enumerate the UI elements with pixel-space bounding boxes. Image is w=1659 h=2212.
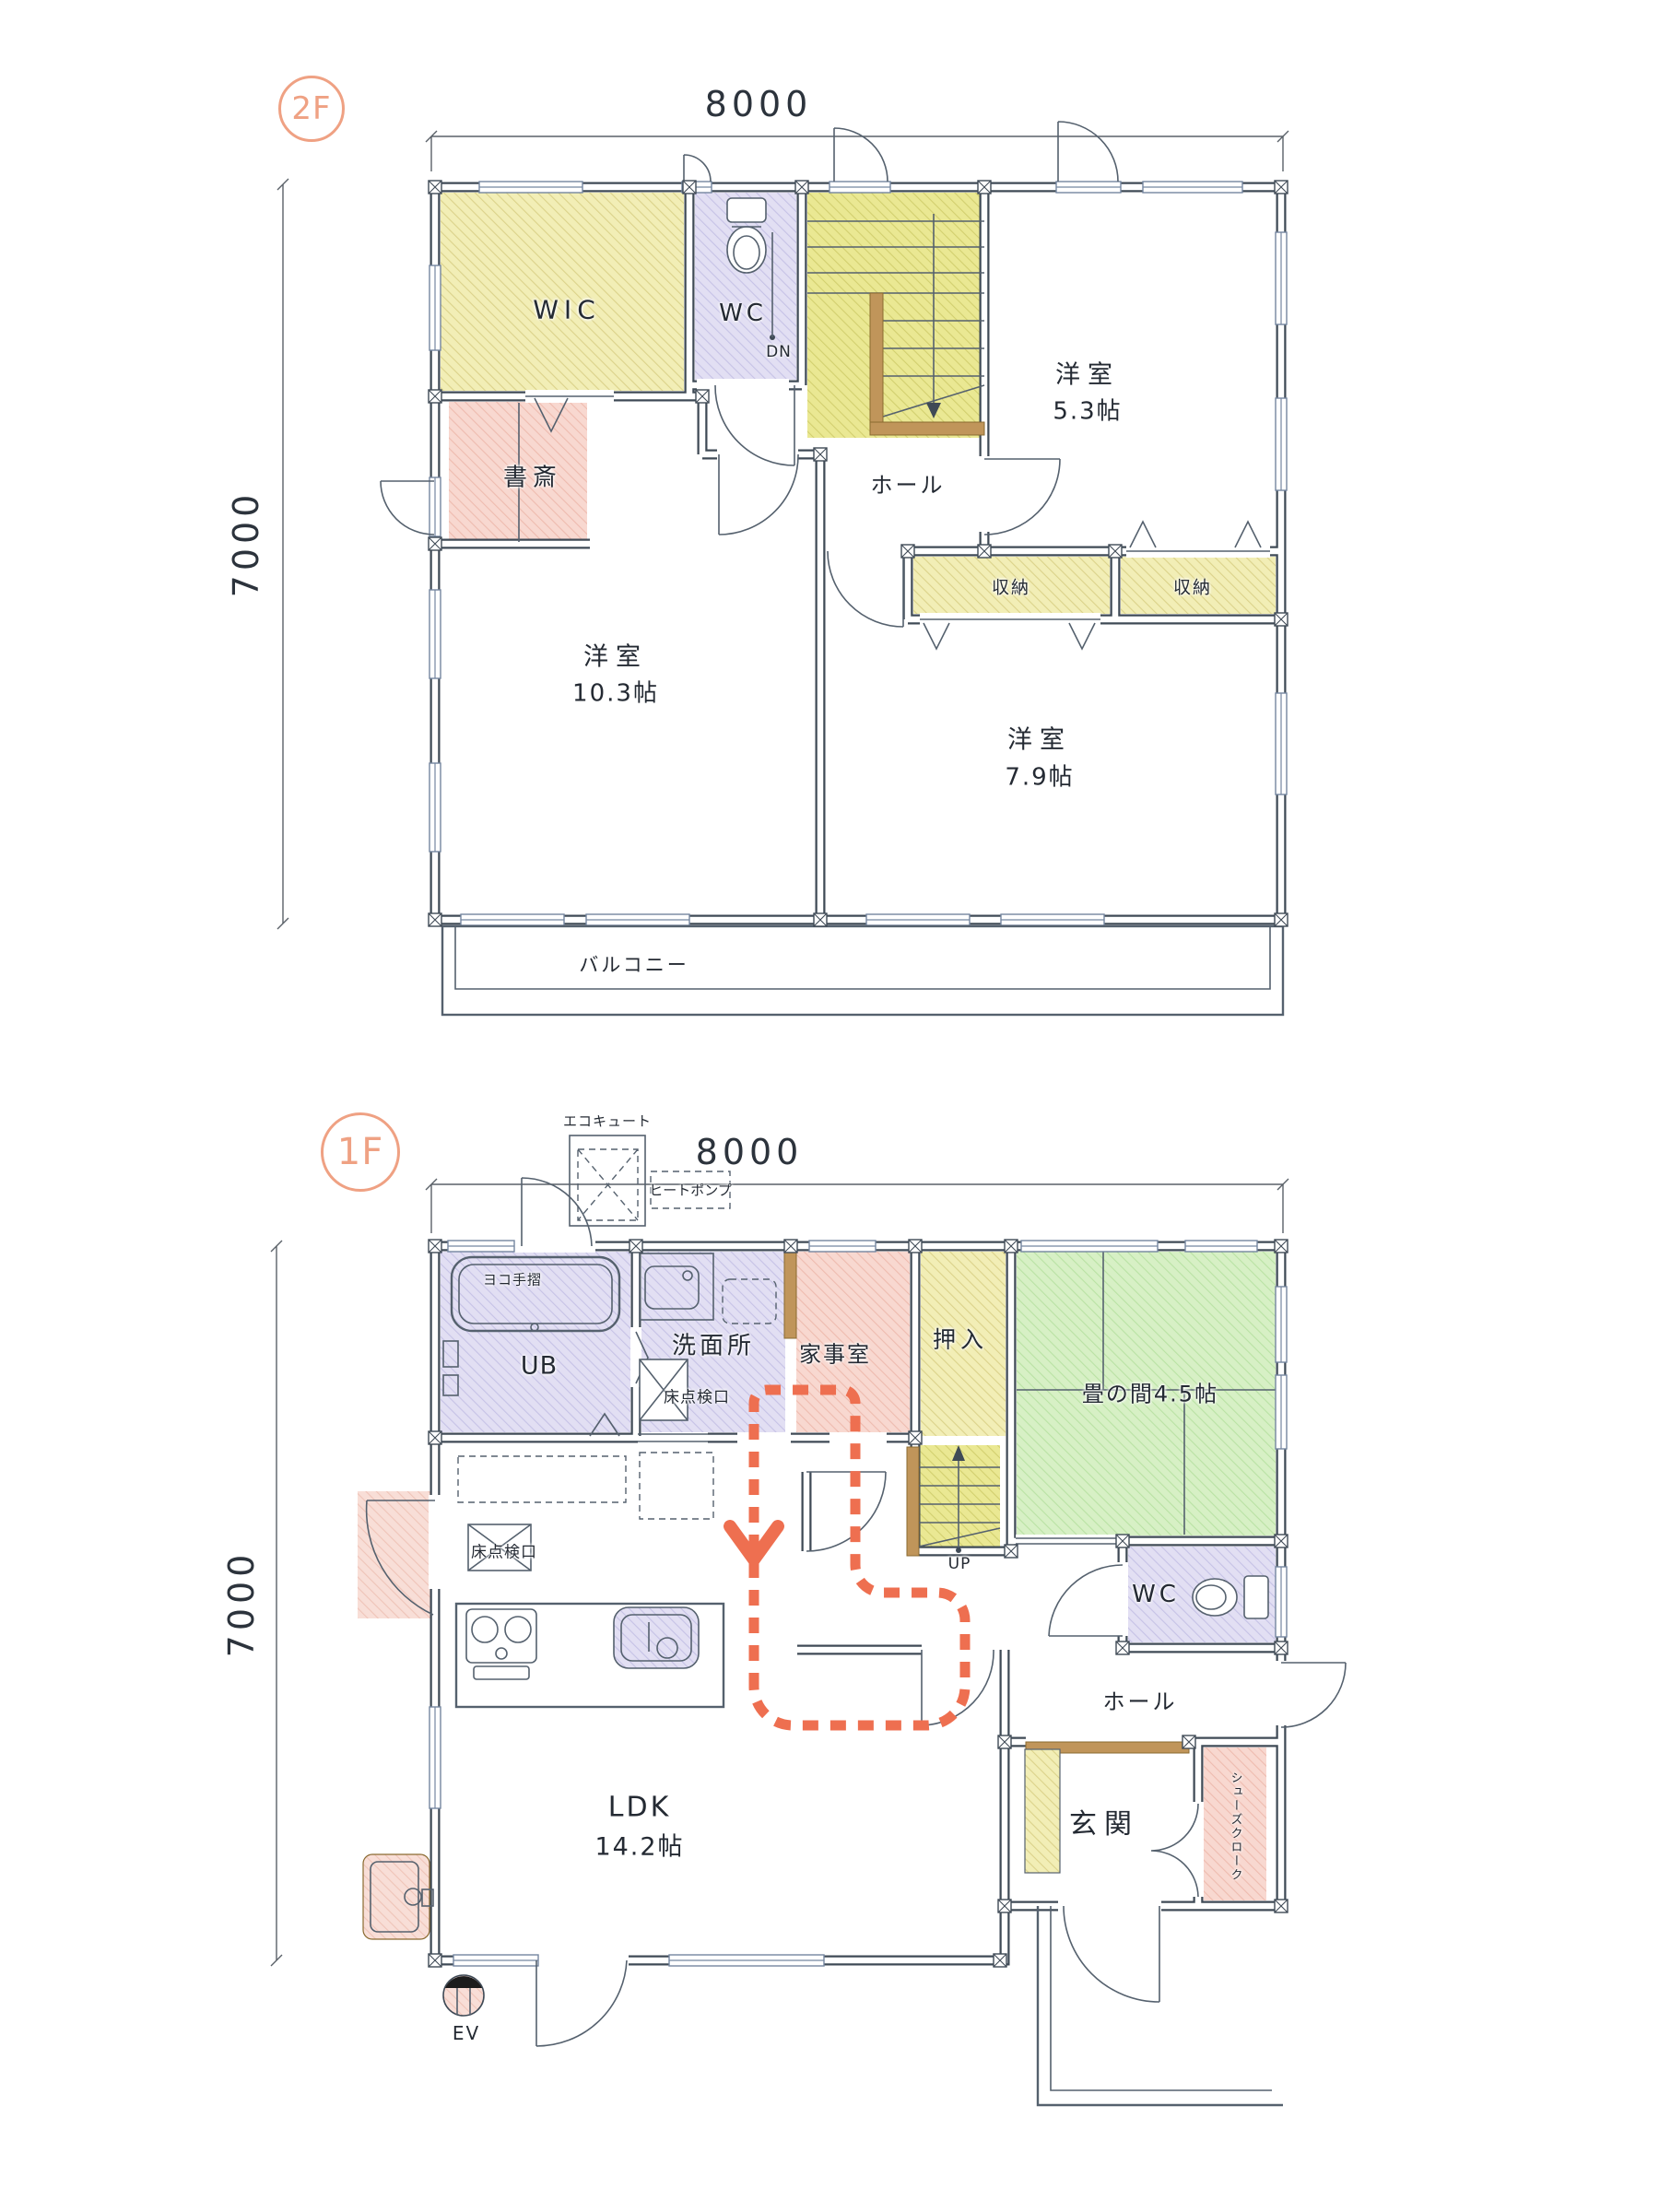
room-label-balcony: バルコニー bbox=[579, 950, 689, 978]
toilet-icon-2f bbox=[727, 198, 766, 273]
plan-drawing bbox=[0, 0, 1659, 2212]
ecocute-box bbox=[570, 1135, 645, 1226]
outdoor-sink-icon bbox=[363, 1854, 433, 1939]
room-label-wc-2f: WC bbox=[719, 300, 767, 327]
red-route-arrow bbox=[730, 1390, 965, 1725]
stairs-up-label: UP bbox=[948, 1555, 971, 1573]
room-label-yoshitsu103: 洋室 bbox=[583, 637, 648, 673]
room-label-yoshitsu79: 洋室 bbox=[1007, 720, 1072, 756]
room-label-wic: WIC bbox=[533, 295, 601, 325]
sink-icon bbox=[614, 1607, 699, 1668]
room-label-ub: UB bbox=[521, 1352, 558, 1381]
room-label-genkan: 玄関 bbox=[1069, 1801, 1139, 1841]
room-label-shoes-cloak: シューズクローク bbox=[1227, 1771, 1244, 1882]
floor1-height-dimension: 7000 bbox=[221, 1550, 262, 1658]
ecocute-label: エコキュート bbox=[563, 1112, 652, 1131]
floor1-badge: 1F bbox=[321, 1112, 400, 1192]
size-label-yoshitsu53: 5.3帖 bbox=[1053, 393, 1122, 427]
kitchen-island-icon bbox=[456, 1604, 724, 1707]
closet-label-2: 収納 bbox=[1173, 574, 1212, 599]
room-label-kajishitsu: 家事室 bbox=[799, 1336, 871, 1369]
shoe-cabinet bbox=[1025, 1749, 1060, 1873]
side-door-swing-area bbox=[358, 1491, 435, 1618]
ev-icon bbox=[443, 1975, 484, 2016]
closet-label-1: 収納 bbox=[992, 574, 1030, 599]
room-label-oshiire: 押入 bbox=[933, 1322, 988, 1355]
size-label-yoshitsu79: 7.9帖 bbox=[1005, 759, 1074, 793]
ev-label: EV bbox=[453, 2022, 480, 2044]
room-label-hall-2f: ホール bbox=[871, 467, 946, 500]
size-label-yoshitsu103: 10.3帖 bbox=[572, 675, 659, 709]
grab-bar-label: ヨコ手摺 bbox=[483, 1270, 542, 1289]
floor2-badge: 2F bbox=[278, 76, 345, 142]
stairs-2f-area bbox=[807, 193, 984, 438]
floor1-width-dimension: 8000 bbox=[696, 1132, 804, 1172]
floor2-width-dimension: 8000 bbox=[705, 84, 813, 124]
room-label-shosai: 書斎 bbox=[503, 459, 562, 493]
room-label-yoshitsu53: 洋室 bbox=[1055, 355, 1120, 391]
room-label-ldk: LDK bbox=[608, 1792, 672, 1824]
room-wic-area bbox=[441, 193, 684, 391]
balcony-outline bbox=[442, 926, 1283, 1015]
heatpump-label: ヒートポンプ bbox=[649, 1181, 732, 1200]
porch-outline bbox=[1038, 1906, 1283, 2105]
floor2-height-dimension: 7000 bbox=[226, 490, 266, 598]
room-label-senmenjo: 洗面所 bbox=[672, 1327, 755, 1361]
room-label-hall-1f: ホール bbox=[1103, 1684, 1178, 1716]
stove-icon bbox=[466, 1609, 536, 1679]
floor-hatch-label-kitchen: 床点検口 bbox=[471, 1539, 537, 1562]
floor-hatch-label-washroom: 床点検口 bbox=[664, 1384, 730, 1407]
room-label-wc-1f: WC bbox=[1132, 1581, 1180, 1608]
room-label-tatami: 畳の間4.5帖 bbox=[1082, 1376, 1218, 1408]
floor1-drawing bbox=[271, 1135, 1346, 2105]
floorplan-page: 2F 8000 7000 WIC WC DN ホール 洋室 5.3帖 書斎 洋室… bbox=[0, 0, 1659, 2212]
size-label-ldk: 14.2帖 bbox=[594, 1827, 684, 1863]
stairs-dn-label: DN bbox=[766, 343, 792, 361]
floor2-drawing bbox=[277, 122, 1288, 1015]
